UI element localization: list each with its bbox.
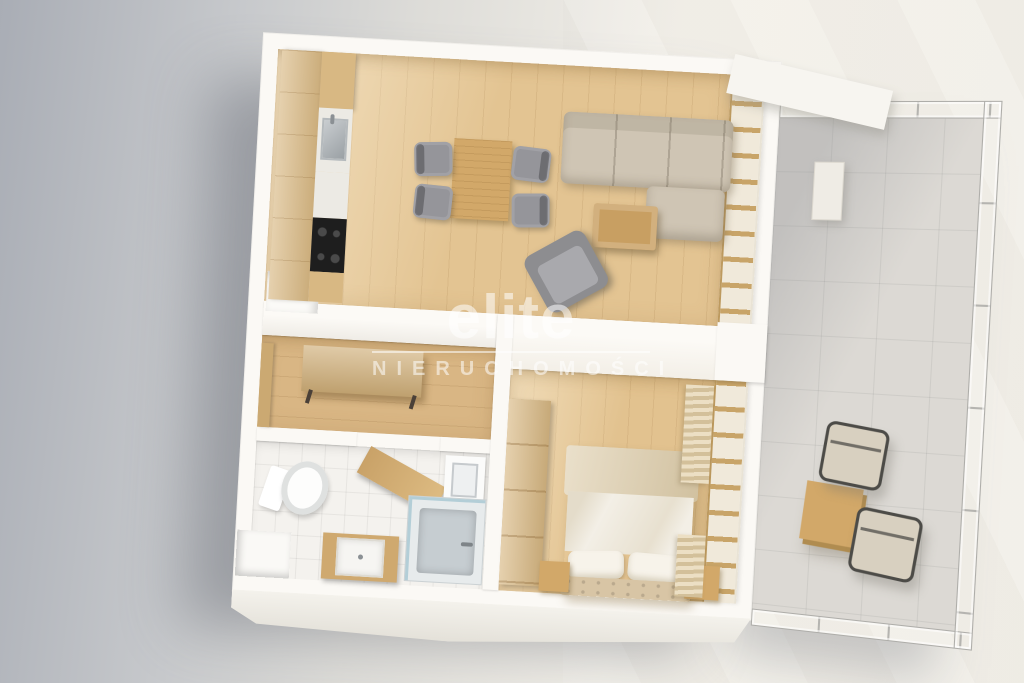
bed-duvet bbox=[565, 491, 694, 558]
kitchen-faucet bbox=[330, 114, 335, 124]
dining-chair-3 bbox=[510, 145, 552, 183]
floorplan-render: elite NIERUCHOMOŚCI bbox=[0, 0, 1024, 683]
kitchen-sink bbox=[320, 118, 348, 161]
watermark-brand: elite bbox=[372, 288, 650, 348]
curtain-bottom bbox=[674, 534, 705, 597]
kitchen-cooktop bbox=[310, 217, 347, 273]
dining-chair-2 bbox=[412, 183, 453, 221]
shower-enclosure bbox=[405, 496, 486, 584]
kitchen-upper-cabinet bbox=[319, 52, 356, 110]
bed-pillow-left bbox=[568, 551, 624, 579]
wall-hall-bath-right bbox=[440, 437, 491, 454]
nightstand-left bbox=[538, 561, 570, 593]
bathroom-wall-niche bbox=[235, 530, 291, 579]
dining-chair-4 bbox=[512, 193, 550, 227]
dining-chair-1 bbox=[414, 142, 452, 177]
watermark: elite NIERUCHOMOŚCI bbox=[372, 288, 650, 388]
sink-vanity bbox=[321, 532, 399, 582]
sofa bbox=[560, 111, 734, 192]
watermark-divider bbox=[372, 351, 650, 353]
window-pillar bbox=[714, 322, 767, 383]
watermark-subtitle: NIERUCHOMOŚCI bbox=[372, 358, 664, 381]
coffee-table bbox=[592, 203, 658, 251]
dining-table bbox=[450, 138, 512, 221]
balcony-storage-box bbox=[811, 162, 845, 221]
kitchen-base-cabinet bbox=[308, 271, 344, 303]
balcony bbox=[751, 101, 1003, 651]
kitchen-counter bbox=[313, 171, 350, 219]
balcony-chair-1 bbox=[817, 420, 890, 493]
curtain-top bbox=[681, 384, 714, 483]
balcony-chair-2 bbox=[847, 506, 924, 585]
